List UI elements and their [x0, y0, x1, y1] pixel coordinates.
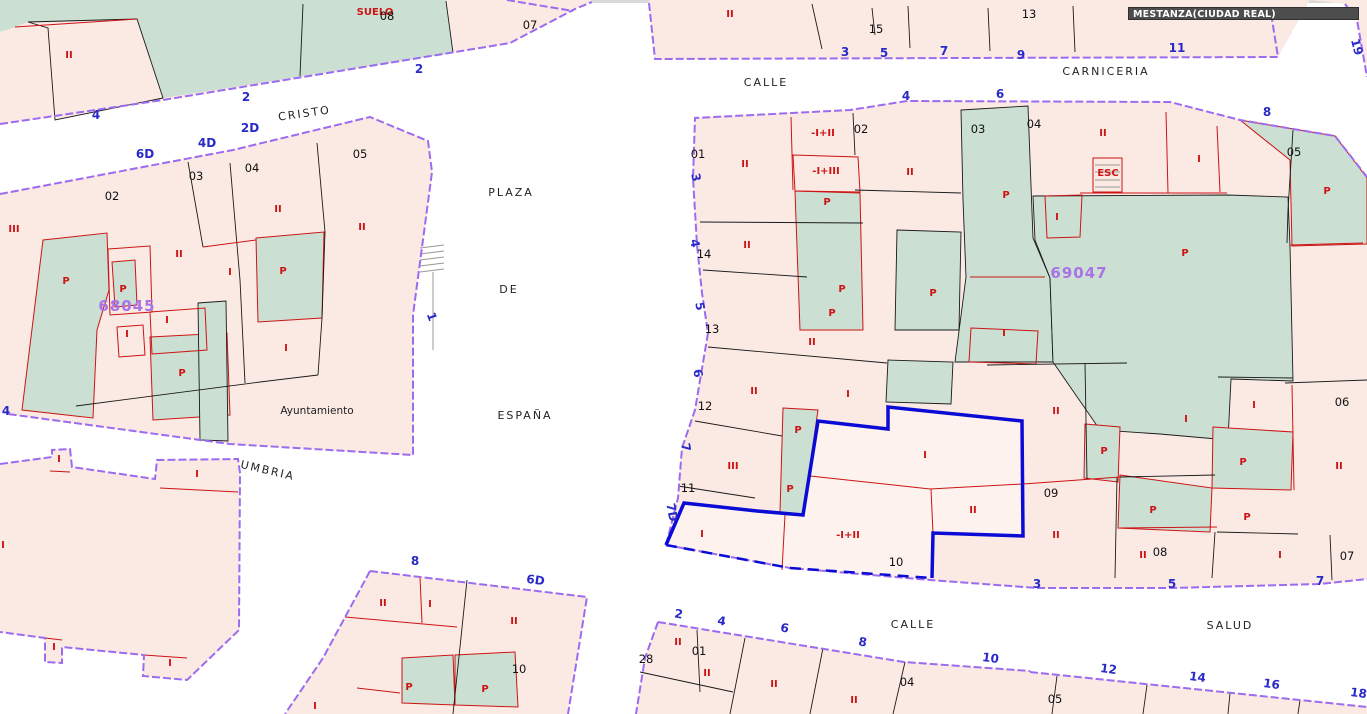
parcel-number: 04 — [900, 675, 915, 689]
parcel-number: 10 — [889, 555, 904, 569]
construction-label: P — [481, 684, 488, 695]
construction-label: II — [726, 9, 733, 20]
construction-label: P — [1100, 446, 1107, 457]
street-number: 4 — [716, 613, 727, 628]
construction-label: I — [1055, 212, 1059, 223]
street-number: 7D — [663, 502, 680, 523]
street-number: 6D — [136, 147, 154, 161]
construction-label: II — [969, 505, 976, 516]
parcel-number: 02 — [854, 122, 869, 136]
construction-label: III — [727, 461, 738, 472]
construction-label: I — [195, 469, 199, 480]
construction-label: II — [510, 616, 517, 627]
street-number: 12 — [1099, 661, 1117, 677]
construction-label: P — [794, 425, 801, 436]
construction-label: I — [1, 540, 5, 551]
street-number: 5 — [1168, 577, 1176, 591]
construction-label: P — [1323, 186, 1330, 197]
street-number: 16 — [1262, 676, 1280, 692]
street-number: 8 — [1263, 105, 1271, 119]
block-code: 68045 — [98, 297, 155, 315]
parcel-number: 15 — [869, 22, 884, 36]
construction-label: I — [125, 329, 129, 340]
street-name: CRISTO — [277, 103, 331, 123]
street-name: PLAZA — [488, 186, 534, 199]
construction-label: P — [119, 284, 126, 295]
street-name: ESPAÑA — [497, 409, 552, 422]
cadastral-map-viewport[interactable]: SUELOIIIIIPPIIIIPIIIPIIIIIII-I+II-I+IIIP… — [0, 0, 1367, 714]
street-number: 1 — [424, 310, 440, 323]
parcel-number: 28 — [639, 652, 654, 666]
construction-label: P — [1149, 505, 1156, 516]
construction-label: II — [65, 50, 72, 61]
street-number: 18 — [1349, 685, 1367, 701]
street-name: SALUD — [1207, 619, 1254, 632]
street-number: 6 — [779, 620, 790, 635]
construction-label: II — [175, 249, 182, 260]
street-number: 2 — [242, 90, 250, 104]
parcel-number: 04 — [1027, 117, 1042, 131]
construction-label: P — [786, 484, 793, 495]
street-number: 8 — [857, 634, 868, 649]
construction-label: III — [8, 224, 19, 235]
parcel-number: 07 — [1340, 549, 1355, 563]
construction-label: II — [674, 637, 681, 648]
street-number: 14 — [1188, 669, 1206, 685]
street-number: 3 — [841, 45, 849, 59]
street-number: 2 — [673, 606, 684, 621]
construction-label: I — [1278, 550, 1282, 561]
construction-label: I — [1197, 154, 1201, 165]
parcel-number: 02 — [105, 189, 120, 203]
construction-label: P — [178, 368, 185, 379]
construction-label: II — [703, 668, 710, 679]
street-number: 8 — [411, 554, 419, 568]
construction-label: II — [274, 204, 281, 215]
construction-label: I — [313, 701, 317, 712]
street-name: CARNICERIA — [1062, 65, 1149, 78]
parcel-number: 10 — [512, 662, 527, 676]
street-name: DE — [499, 283, 518, 296]
street-number: 10 — [981, 650, 999, 666]
parcel-number: 08 — [1153, 545, 1168, 559]
construction-label: II — [743, 240, 750, 251]
construction-label: II — [1139, 550, 1146, 561]
parcel-number: 07 — [523, 18, 538, 32]
construction-label: I — [228, 267, 232, 278]
construction-label: II — [1052, 530, 1059, 541]
construction-label: II — [1335, 461, 1342, 472]
parcel-number: 01 — [692, 644, 707, 658]
construction-label: I — [1184, 414, 1188, 425]
construction-label: P — [279, 266, 286, 277]
construction-label: II — [1099, 128, 1106, 139]
construction-label: I — [923, 450, 927, 461]
parcel-number: 05 — [1287, 145, 1302, 159]
construction-label: I — [52, 642, 56, 653]
construction-label: -I+III — [812, 166, 839, 177]
construction-label: II — [808, 337, 815, 348]
street-number: 7 — [940, 44, 948, 58]
street-number: 19 — [1348, 37, 1366, 57]
construction-label: P — [828, 308, 835, 319]
street-number: 2 — [415, 62, 423, 76]
construction-label: I — [57, 454, 61, 465]
construction-label: II — [1052, 406, 1059, 417]
block-code: 69047 — [1050, 264, 1107, 282]
construction-label: P — [838, 284, 845, 295]
construction-label: P — [62, 276, 69, 287]
parcel-number: 09 — [1044, 486, 1059, 500]
street-name: CALLE — [744, 76, 788, 89]
street-name: UMBRIA — [239, 458, 296, 483]
street-number: 6D — [526, 572, 546, 588]
construction-label: P — [823, 197, 830, 208]
construction-label: II — [770, 679, 777, 690]
street-number: 4 — [2, 404, 10, 418]
construction-label: I — [428, 599, 432, 610]
construction-label: II — [358, 222, 365, 233]
construction-label: I — [1252, 400, 1256, 411]
parcel-number: 05 — [1048, 692, 1063, 706]
map-canvas[interactable]: SUELOIIIIIPPIIIIPIIIPIIIIIII-I+II-I+IIIP… — [0, 0, 1367, 714]
construction-label: II — [379, 598, 386, 609]
construction-label: II — [906, 167, 913, 178]
parcel-number: 06 — [1335, 395, 1350, 409]
construction-label: II — [750, 386, 757, 397]
construction-label: I — [846, 389, 850, 400]
construction-label: P — [1002, 190, 1009, 201]
parcel-number: 13 — [705, 322, 720, 336]
construction-label: ESC — [1097, 168, 1118, 179]
parcel-number: 13 — [1022, 7, 1037, 21]
street-name: CALLE — [891, 618, 935, 631]
street-number: 9 — [1017, 48, 1025, 62]
parcel-number: 03 — [189, 169, 204, 183]
street-number: 11 — [1169, 41, 1186, 55]
construction-label: -I+II — [836, 530, 860, 541]
municipality-overlay-label: MESTANZA(CIUDAD REAL) — [1128, 7, 1359, 20]
parcel-number: 05 — [353, 147, 368, 161]
construction-label: II — [850, 695, 857, 706]
street-number: 5 — [880, 46, 888, 60]
construction-label: I — [284, 343, 288, 354]
building-labels: Ayuntamiento — [280, 405, 353, 417]
construction-label: P — [1239, 457, 1246, 468]
construction-label: P — [1243, 512, 1250, 523]
street-number: 4D — [198, 136, 216, 150]
construction-label: I — [165, 315, 169, 326]
construction-label: -I+II — [811, 128, 835, 139]
building-label: Ayuntamiento — [280, 405, 353, 417]
street-number: 2D — [241, 121, 259, 135]
parcel-number: 14 — [697, 247, 712, 261]
construction-label: I — [168, 658, 172, 669]
construction-label: I — [1002, 328, 1006, 339]
construction-label: P — [1181, 248, 1188, 259]
construction-label: I — [700, 529, 704, 540]
street-number: 7 — [1316, 574, 1324, 588]
parcel-number: 01 — [691, 147, 706, 161]
parcel-number: 03 — [971, 122, 986, 136]
street-number: 3 — [1033, 577, 1041, 591]
parcel-number: 11 — [681, 481, 696, 495]
parcel-number: 08 — [380, 9, 395, 23]
construction-label: II — [741, 159, 748, 170]
street-number: 4 — [902, 89, 910, 103]
parcel-number: 04 — [245, 161, 260, 175]
construction-label: P — [929, 288, 936, 299]
construction-label: P — [405, 682, 412, 693]
parcel-number: 12 — [698, 399, 713, 413]
street-number: 6 — [996, 87, 1004, 101]
street-number: 4 — [92, 108, 100, 122]
